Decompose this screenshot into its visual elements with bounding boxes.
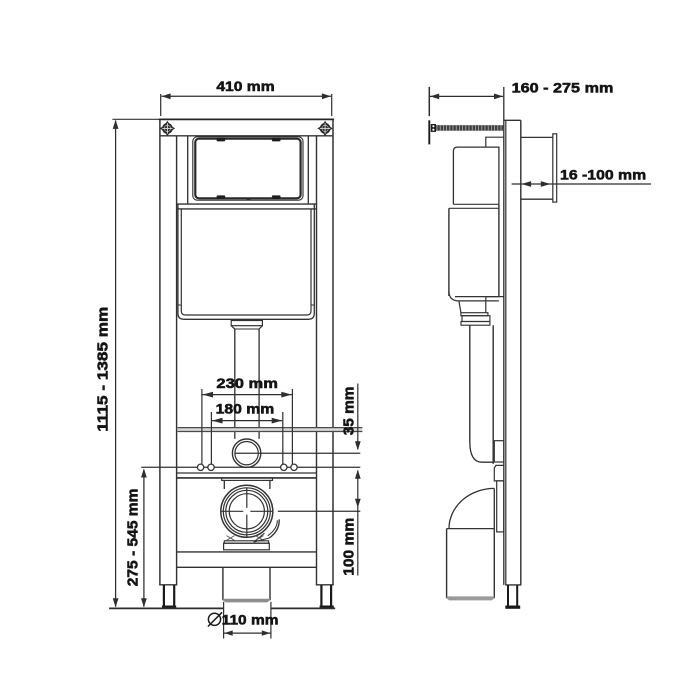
svg-text:16 -100 mm: 16 -100 mm xyxy=(560,166,646,182)
svg-text:410 mm: 410 mm xyxy=(216,78,274,94)
svg-text:230 mm: 230 mm xyxy=(216,375,278,391)
svg-text:275 - 545 mm: 275 - 545 mm xyxy=(124,489,141,587)
svg-text:35 mm: 35 mm xyxy=(340,387,357,436)
svg-text:180 mm: 180 mm xyxy=(216,400,275,416)
svg-text:110 mm: 110 mm xyxy=(222,611,279,627)
svg-text:100 mm: 100 mm xyxy=(341,518,358,576)
svg-text:1115 - 1385 mm: 1115 - 1385 mm xyxy=(94,307,111,432)
svg-text:160 - 275 mm: 160 - 275 mm xyxy=(512,79,614,95)
